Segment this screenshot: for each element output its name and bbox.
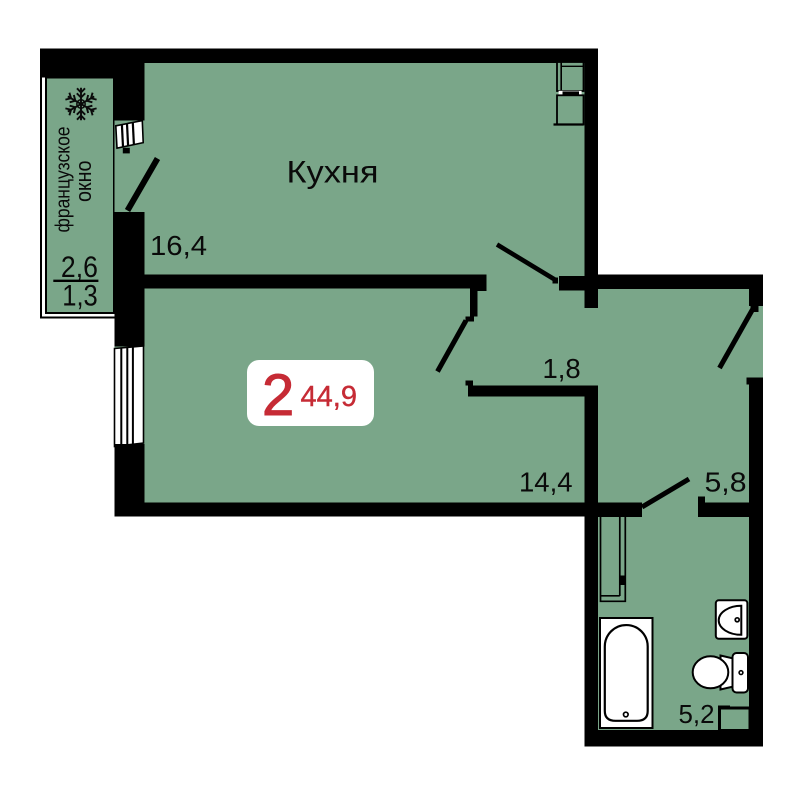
svg-text:5,2: 5,2 xyxy=(679,699,715,729)
svg-text:2: 2 xyxy=(262,363,294,428)
svg-text:1,8: 1,8 xyxy=(543,353,581,384)
svg-text:5,8: 5,8 xyxy=(705,467,747,498)
svg-text:1,3: 1,3 xyxy=(62,280,98,313)
svg-text:окно: окно xyxy=(71,161,96,203)
svg-text:14,4: 14,4 xyxy=(519,466,573,497)
svg-text:16,4: 16,4 xyxy=(150,230,207,261)
svg-text:Кухня: Кухня xyxy=(287,153,379,189)
svg-text:44,9: 44,9 xyxy=(301,381,357,413)
